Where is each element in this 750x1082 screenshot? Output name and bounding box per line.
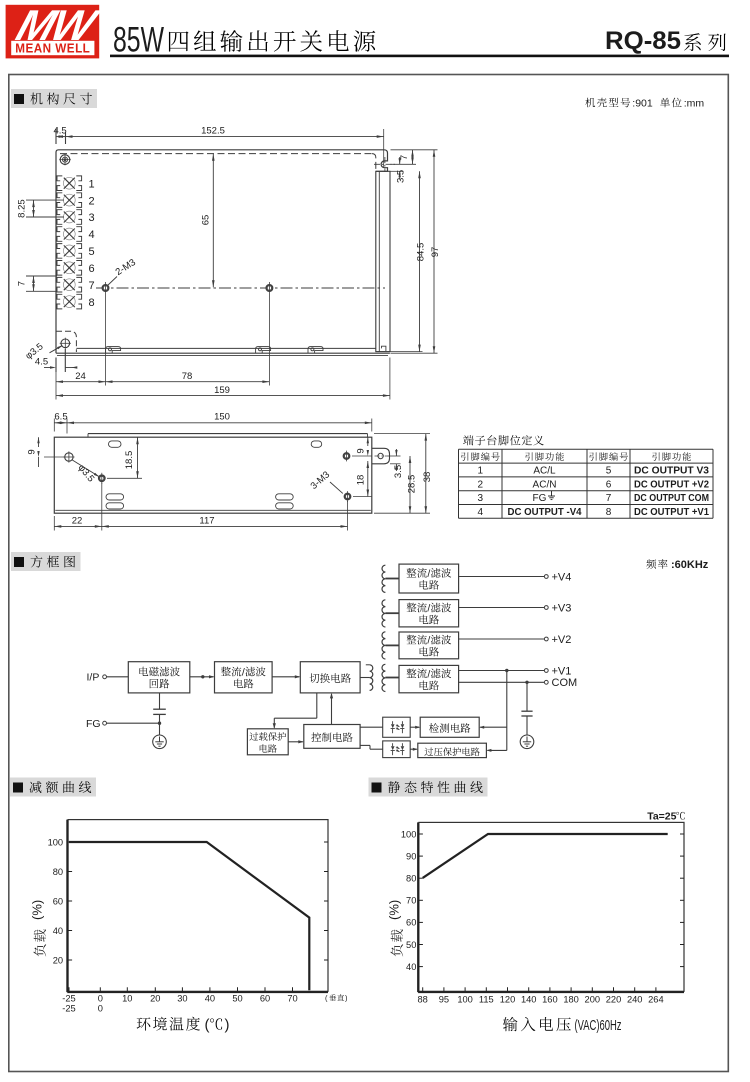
- svg-text:80: 80: [53, 867, 63, 877]
- svg-text:+V1: +V1: [552, 665, 572, 677]
- svg-text:95: 95: [439, 995, 449, 1005]
- svg-text:6: 6: [89, 263, 95, 275]
- svg-text:FG: FG: [86, 718, 101, 730]
- svg-text:): ): [225, 1017, 230, 1034]
- svg-text:(: (: [205, 1017, 210, 1034]
- svg-text:4: 4: [89, 229, 95, 241]
- svg-text::mm: :mm: [684, 98, 705, 110]
- svg-text:200: 200: [585, 995, 601, 1005]
- svg-text:COM: COM: [552, 677, 578, 689]
- svg-text:90: 90: [406, 851, 416, 861]
- svg-text:FG: FG: [533, 493, 547, 504]
- svg-text:DC OUTPUT V3: DC OUTPUT V3: [634, 466, 709, 477]
- svg-text::901: :901: [632, 98, 653, 110]
- svg-text:/: /: [242, 667, 245, 679]
- svg-text:159: 159: [214, 385, 230, 396]
- svg-text:38: 38: [422, 472, 433, 483]
- svg-text:60: 60: [406, 918, 416, 928]
- svg-text:6.5: 6.5: [54, 412, 67, 423]
- svg-text::60KHz: :60KHz: [671, 559, 709, 571]
- svg-text:(%): (%): [387, 900, 402, 920]
- svg-text:2: 2: [477, 479, 483, 490]
- svg-text:60: 60: [260, 994, 270, 1004]
- svg-text:(%): (%): [30, 900, 45, 920]
- svg-text:7: 7: [606, 493, 612, 504]
- svg-text:3: 3: [477, 493, 483, 504]
- svg-text:+V2: +V2: [552, 634, 572, 646]
- svg-text:+V4: +V4: [552, 571, 572, 583]
- svg-text:/: /: [427, 568, 430, 580]
- svg-text:85W: 85W: [113, 21, 164, 60]
- svg-text:(VAC)60Hz: (VAC)60Hz: [575, 1017, 622, 1034]
- svg-text:18.5: 18.5: [124, 451, 135, 470]
- svg-text:5: 5: [606, 466, 612, 477]
- svg-text:264: 264: [648, 995, 664, 1005]
- svg-text:18: 18: [356, 475, 367, 486]
- svg-text:3: 3: [89, 212, 95, 224]
- svg-text:28.5: 28.5: [406, 475, 417, 494]
- svg-text:78: 78: [182, 371, 193, 382]
- svg-text:65: 65: [201, 215, 212, 226]
- svg-text:240: 240: [627, 995, 643, 1005]
- svg-text:I/P: I/P: [87, 672, 100, 684]
- svg-text:40: 40: [53, 926, 63, 936]
- svg-text:97: 97: [430, 247, 441, 258]
- svg-text:9: 9: [27, 449, 38, 454]
- svg-text:/: /: [427, 668, 430, 680]
- svg-text:9: 9: [356, 448, 367, 453]
- svg-text:70: 70: [406, 896, 416, 906]
- svg-text:0: 0: [98, 994, 103, 1004]
- svg-text:160: 160: [542, 995, 558, 1005]
- svg-text:DC OUTPUT COM: DC OUTPUT COM: [634, 493, 709, 504]
- svg-text:88: 88: [418, 995, 428, 1005]
- svg-text:7: 7: [89, 280, 95, 292]
- svg-text:5: 5: [89, 246, 95, 258]
- svg-text:DC OUTPUT +V2: DC OUTPUT +V2: [634, 479, 709, 490]
- svg-text:100: 100: [401, 829, 417, 839]
- svg-text:7: 7: [17, 281, 28, 286]
- svg-text:3.5: 3.5: [393, 465, 404, 478]
- svg-text:140: 140: [521, 995, 537, 1005]
- svg-text:84.5: 84.5: [416, 243, 427, 262]
- svg-text:120: 120: [500, 995, 516, 1005]
- svg-text:22: 22: [72, 516, 83, 527]
- svg-text:117: 117: [199, 516, 214, 527]
- svg-text:DC OUTPUT -V4: DC OUTPUT -V4: [508, 507, 582, 518]
- svg-text:Ta=25: Ta=25: [647, 811, 676, 823]
- svg-text:100: 100: [457, 995, 473, 1005]
- svg-text:60: 60: [53, 896, 63, 906]
- svg-text:DC OUTPUT +V1: DC OUTPUT +V1: [634, 507, 709, 518]
- svg-text:3.5: 3.5: [395, 170, 406, 183]
- svg-text:1: 1: [477, 466, 483, 477]
- svg-text:24: 24: [75, 371, 86, 382]
- svg-text:30: 30: [177, 994, 187, 1004]
- svg-text:152.5: 152.5: [201, 126, 225, 137]
- svg-text:150: 150: [214, 412, 230, 423]
- svg-text:10: 10: [122, 994, 132, 1004]
- svg-text:4: 4: [477, 507, 483, 518]
- svg-text:40: 40: [205, 994, 215, 1004]
- svg-text:4.5: 4.5: [54, 126, 67, 137]
- svg-text:20: 20: [53, 955, 63, 965]
- svg-text:8.25: 8.25: [17, 199, 28, 218]
- svg-text:50: 50: [406, 940, 416, 950]
- svg-text:70: 70: [287, 994, 297, 1004]
- svg-text:-25: -25: [62, 1004, 75, 1014]
- svg-text:+V3: +V3: [552, 602, 572, 614]
- svg-text:AC/L: AC/L: [533, 466, 556, 477]
- svg-text:80: 80: [406, 874, 416, 884]
- svg-text:100: 100: [48, 837, 64, 847]
- svg-text:8: 8: [606, 507, 612, 518]
- svg-text:AC/N: AC/N: [533, 479, 557, 490]
- svg-text:8: 8: [89, 297, 95, 309]
- svg-text:0: 0: [98, 1004, 103, 1014]
- svg-text:6: 6: [606, 479, 612, 490]
- svg-text:/: /: [427, 635, 430, 647]
- svg-text:2: 2: [89, 195, 95, 207]
- svg-text:20: 20: [150, 994, 160, 1004]
- svg-text:/: /: [427, 602, 430, 614]
- svg-text:MEAN WELL: MEAN WELL: [15, 42, 90, 56]
- svg-text:40: 40: [406, 962, 416, 972]
- svg-text:50: 50: [232, 994, 242, 1004]
- svg-text:115: 115: [479, 995, 494, 1005]
- svg-text:1: 1: [89, 178, 95, 190]
- svg-text:RQ-85: RQ-85: [605, 27, 681, 55]
- svg-text:220: 220: [606, 995, 622, 1005]
- svg-text:180: 180: [563, 995, 579, 1005]
- svg-text:4.5: 4.5: [35, 357, 48, 368]
- svg-text:-25: -25: [62, 994, 75, 1004]
